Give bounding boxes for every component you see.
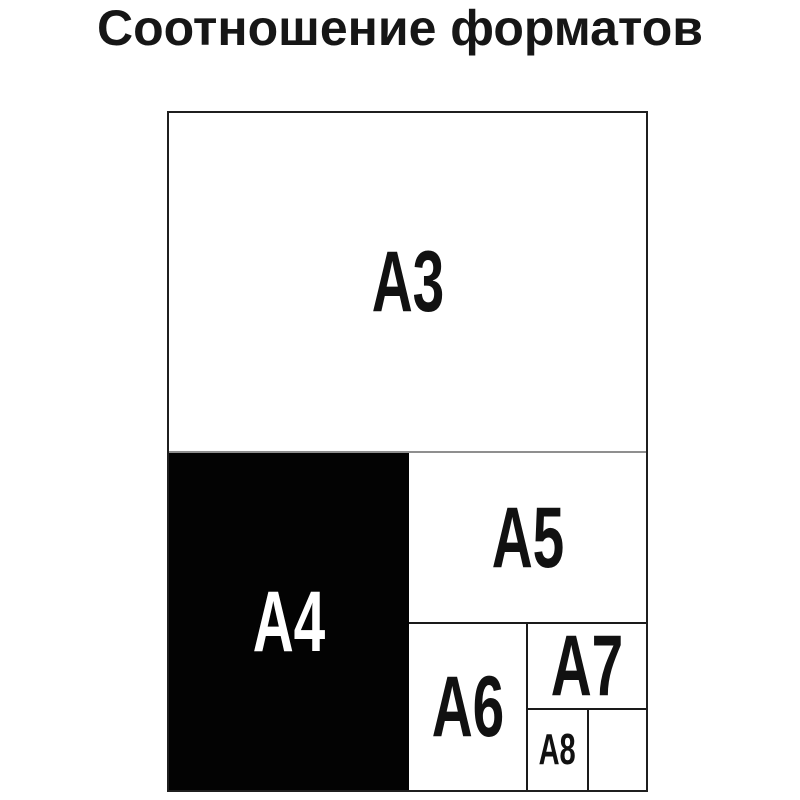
format-a6-label: A6	[431, 664, 504, 750]
residual-format-cell	[589, 710, 646, 790]
paper-format-diagram: A3 A4 A5 A6 A7 A8	[167, 111, 648, 792]
format-a6-cell: A6	[409, 624, 528, 790]
format-a8-cell: A8	[528, 710, 589, 790]
format-a7-label: A7	[551, 623, 624, 709]
format-a3-cell: A3	[169, 113, 646, 453]
format-a7-cell: A7	[528, 624, 646, 710]
format-a3-label: A3	[371, 239, 444, 325]
page-title: Соотношение форматов	[0, 0, 800, 56]
format-a4-cell: A4	[169, 453, 409, 790]
format-a4-label: A4	[253, 579, 326, 665]
format-a8-label: A8	[539, 728, 576, 772]
format-a5-label: A5	[491, 495, 564, 581]
format-a5-cell: A5	[409, 453, 646, 624]
product-image-canvas: Соотношение форматов A3 A4 A5 A6 A7 A8	[0, 0, 800, 800]
